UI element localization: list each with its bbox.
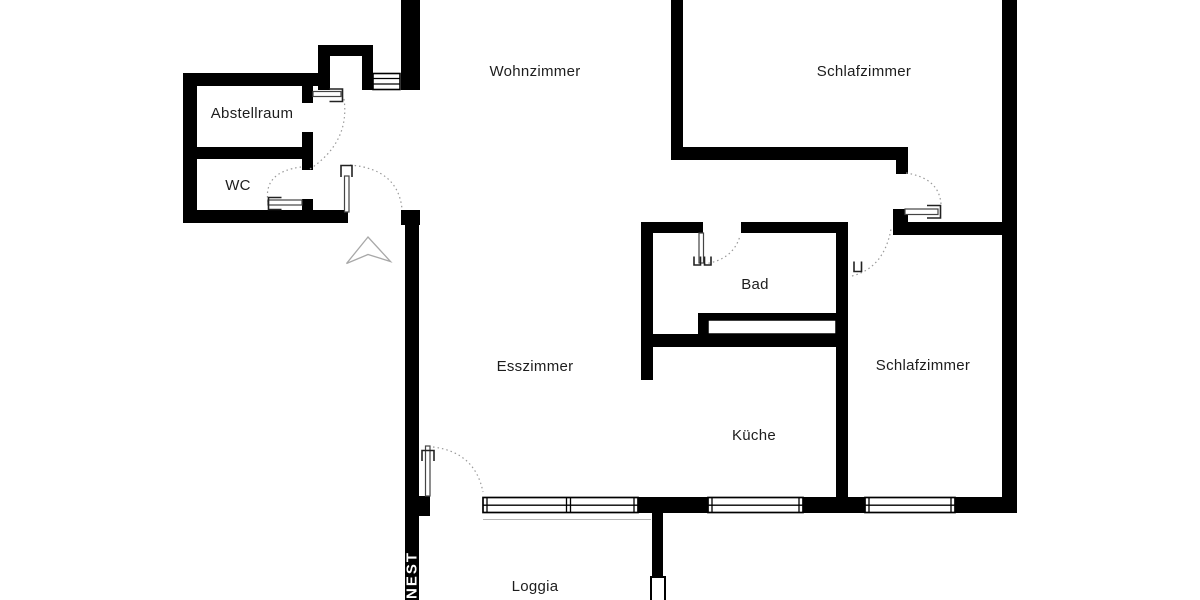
wall-wc-bottom xyxy=(183,210,348,223)
wall-band-pier-center xyxy=(638,497,708,513)
door-bracket-entrance xyxy=(341,166,352,178)
wall-abstellraum-top xyxy=(183,73,318,86)
wall-bad-top-left xyxy=(641,222,703,233)
wall-bad-bottom xyxy=(651,334,837,347)
window-kueche xyxy=(708,498,803,513)
wall-hall-top xyxy=(401,0,420,90)
wall-abstellraum-left xyxy=(183,73,197,223)
room-label-abstellraum: Abstellraum xyxy=(211,105,294,122)
room-label-kueche: Küche xyxy=(732,427,776,444)
room-label-schlafzimmer-2: Schlafzimmer xyxy=(876,357,970,374)
wall-left-outer xyxy=(405,210,419,600)
door-arc-abstellraum xyxy=(310,99,345,169)
wall-bad-top-right xyxy=(741,222,848,233)
door-leaf-entrance xyxy=(345,176,350,212)
room-labels: Wohnzimmer Schlafzimmer Abstellraum WC B… xyxy=(211,63,970,595)
room-label-wc: WC xyxy=(225,177,251,194)
door-arc-loggia xyxy=(433,447,483,492)
wall-schlafzimmer2-top xyxy=(893,222,1005,235)
floor-plan-canvas: NEST Wohnzimmer Schlafzimmer Abstellraum… xyxy=(0,0,1200,600)
door-leaf-loggia xyxy=(426,446,431,496)
wall-band-corner xyxy=(955,497,1017,513)
door-leaf-abstellraum xyxy=(313,92,341,97)
floor-plan: NEST Wohnzimmer Schlafzimmer Abstellraum… xyxy=(0,0,1200,600)
door-arc-schlafzimmer1 xyxy=(906,173,941,204)
wall-kueche-right xyxy=(836,222,848,498)
window-schlafzimmer2 xyxy=(865,498,955,513)
room-label-esszimmer: Esszimmer xyxy=(497,358,574,375)
bathtub-outline xyxy=(708,320,836,334)
wall-abstellraum-door-jamb xyxy=(302,86,313,103)
door-leaf-wc xyxy=(268,200,302,205)
wall-bad-left xyxy=(641,222,653,380)
wall-abstellraum-wc-divider xyxy=(197,147,305,159)
room-label-loggia: Loggia xyxy=(512,578,559,595)
wall-wc-door-stub xyxy=(302,199,313,211)
watermark-nest: NEST xyxy=(404,551,421,599)
loggia-door-opening xyxy=(651,577,665,600)
entrance-arrow xyxy=(347,237,391,264)
room-label-bad: Bad xyxy=(741,276,769,293)
window-esszimmer xyxy=(483,498,638,513)
window-hall-top xyxy=(373,74,400,90)
door-arc-bad xyxy=(704,236,740,264)
wall-schlafzimmer1-door-stub xyxy=(896,160,908,174)
room-label-schlafzimmer-1: Schlafzimmer xyxy=(817,63,911,80)
wall-loggia-divider xyxy=(652,513,663,577)
door-leaf-schlafzimmer1 xyxy=(905,209,938,215)
wall-wohnzimmer-right xyxy=(671,0,683,158)
room-label-wohnzimmer: Wohnzimmer xyxy=(489,63,580,80)
wall-right-outer xyxy=(1002,0,1017,513)
door-bracket-corridor xyxy=(854,262,862,272)
door-arc-corridor xyxy=(852,229,891,276)
wall-schlafzimmer1-bottom xyxy=(671,147,908,160)
wall-bathtub-top-bar xyxy=(698,313,838,320)
wall-loggia-door-nib xyxy=(419,496,430,516)
door-arc-entrance xyxy=(350,165,402,209)
wall-band-pier-right xyxy=(803,497,865,513)
wall-shaft-right xyxy=(362,45,373,90)
